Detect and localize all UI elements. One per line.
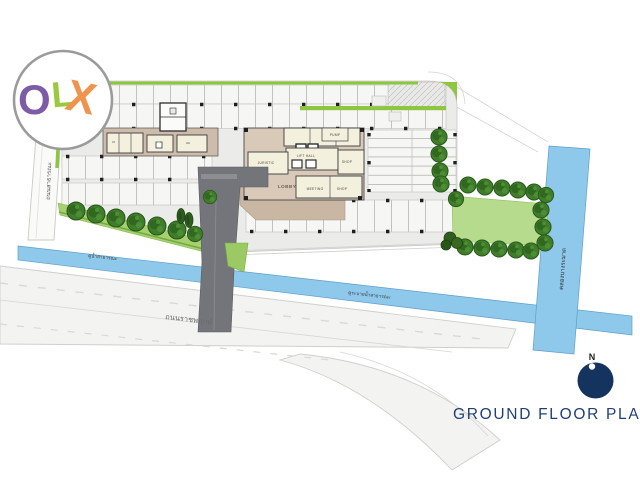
tree-icon bbox=[460, 177, 476, 193]
central-building: PUMP LIFT HALL JURISTIC SHOP MEETING SHO… bbox=[244, 128, 364, 200]
room-label-pump: PUMP bbox=[330, 133, 341, 137]
tree-icon bbox=[537, 235, 553, 251]
tree-icon bbox=[203, 190, 217, 204]
room-label-lift-hall: LIFT HALL bbox=[297, 154, 315, 158]
left-building-shaft bbox=[156, 142, 162, 148]
green-strip-mid bbox=[300, 106, 446, 110]
tree-icon bbox=[510, 182, 526, 198]
tree-icon bbox=[168, 221, 186, 239]
lift-car-1 bbox=[292, 160, 302, 168]
tree-icon bbox=[107, 209, 125, 227]
north-label: N bbox=[589, 352, 596, 362]
road-label-side: ถนนสาธารณะ bbox=[45, 162, 53, 200]
tree-icon bbox=[538, 187, 553, 202]
utility-box-1 bbox=[372, 96, 386, 106]
site-plan-page: PUMP LIFT HALL JURISTIC SHOP MEETING SHO… bbox=[0, 0, 640, 480]
site-plan-canvas: PUMP LIFT HALL JURISTIC SHOP MEETING SHO… bbox=[0, 0, 640, 480]
parking-band-left-1 bbox=[62, 156, 212, 179]
tree-icon bbox=[187, 226, 202, 241]
tree-icon bbox=[494, 180, 510, 196]
green-strip-top bbox=[96, 82, 418, 85]
tree-icon bbox=[491, 241, 507, 257]
olx-logo: O L X bbox=[14, 51, 112, 149]
tree-icon bbox=[508, 242, 524, 258]
tree-icon bbox=[523, 243, 539, 259]
tree-icon bbox=[148, 217, 166, 235]
utility-box-2 bbox=[389, 112, 401, 121]
left-building-room-1 bbox=[107, 133, 143, 153]
logo-letter-o: O bbox=[18, 76, 51, 123]
left-building-room-3 bbox=[177, 135, 207, 152]
lawn bbox=[452, 196, 549, 246]
tree-icon bbox=[87, 205, 105, 223]
tree-icon bbox=[67, 202, 85, 220]
parking-band-left-2 bbox=[62, 183, 220, 205]
room-label-meeting: MEETING bbox=[307, 187, 324, 191]
page-title: GROUND FLOOR PLAN bbox=[453, 406, 640, 423]
tree-icon bbox=[431, 129, 447, 145]
room-label-lobby: LOBBY bbox=[278, 184, 297, 189]
tree-icon bbox=[127, 213, 145, 231]
tree-icon bbox=[474, 240, 490, 256]
lift-car-2 bbox=[306, 160, 316, 168]
access-road-edge-2 bbox=[455, 106, 538, 152]
room-label-shop-upper: SHOP bbox=[342, 160, 353, 164]
north-dot-icon bbox=[589, 363, 595, 369]
hatched-zone bbox=[388, 82, 445, 108]
north-indicator: N bbox=[578, 352, 614, 399]
north-circle-icon bbox=[578, 363, 614, 399]
tree-icon bbox=[477, 179, 493, 195]
tree-icon bbox=[533, 202, 549, 218]
room-label-shop-lower: SHOP bbox=[337, 187, 348, 191]
crossing-stripe bbox=[201, 174, 237, 179]
tree-icon bbox=[535, 219, 551, 235]
tree-icon bbox=[431, 146, 447, 162]
tree-icon bbox=[448, 191, 463, 206]
room-label-juristic: JURISTIC bbox=[258, 161, 275, 165]
cypress-tree-icon bbox=[177, 209, 185, 224]
tree-icon bbox=[433, 176, 449, 192]
cypress-tree-icon bbox=[185, 213, 193, 228]
